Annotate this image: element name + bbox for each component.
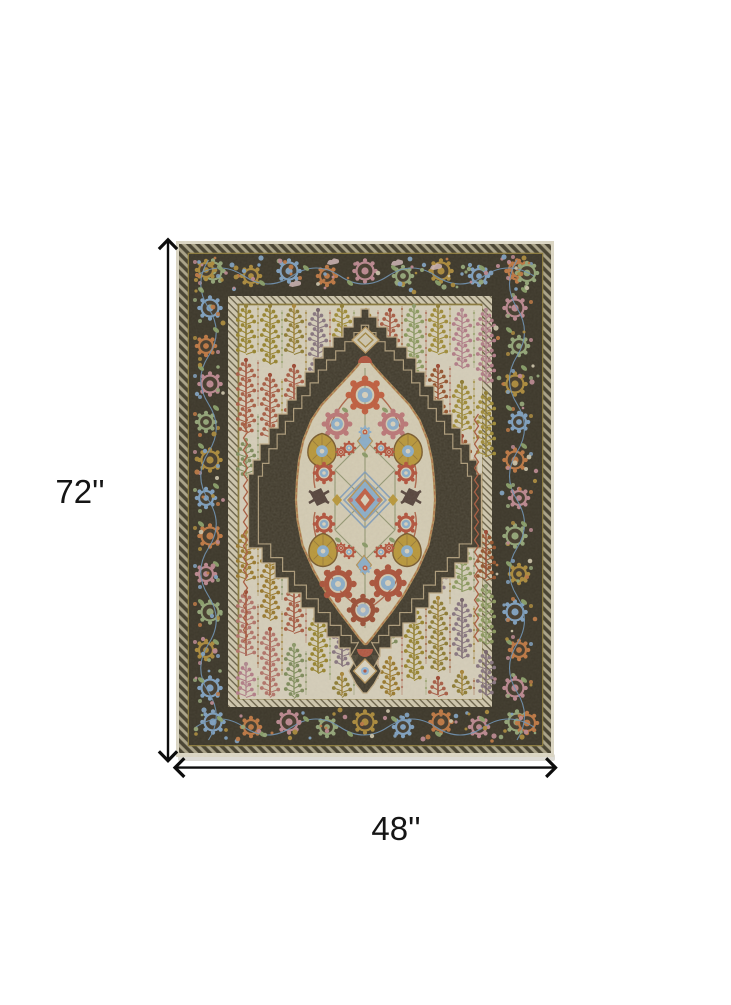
svg-text:72'': 72'' — [55, 473, 104, 510]
svg-text:48'': 48'' — [371, 810, 420, 847]
